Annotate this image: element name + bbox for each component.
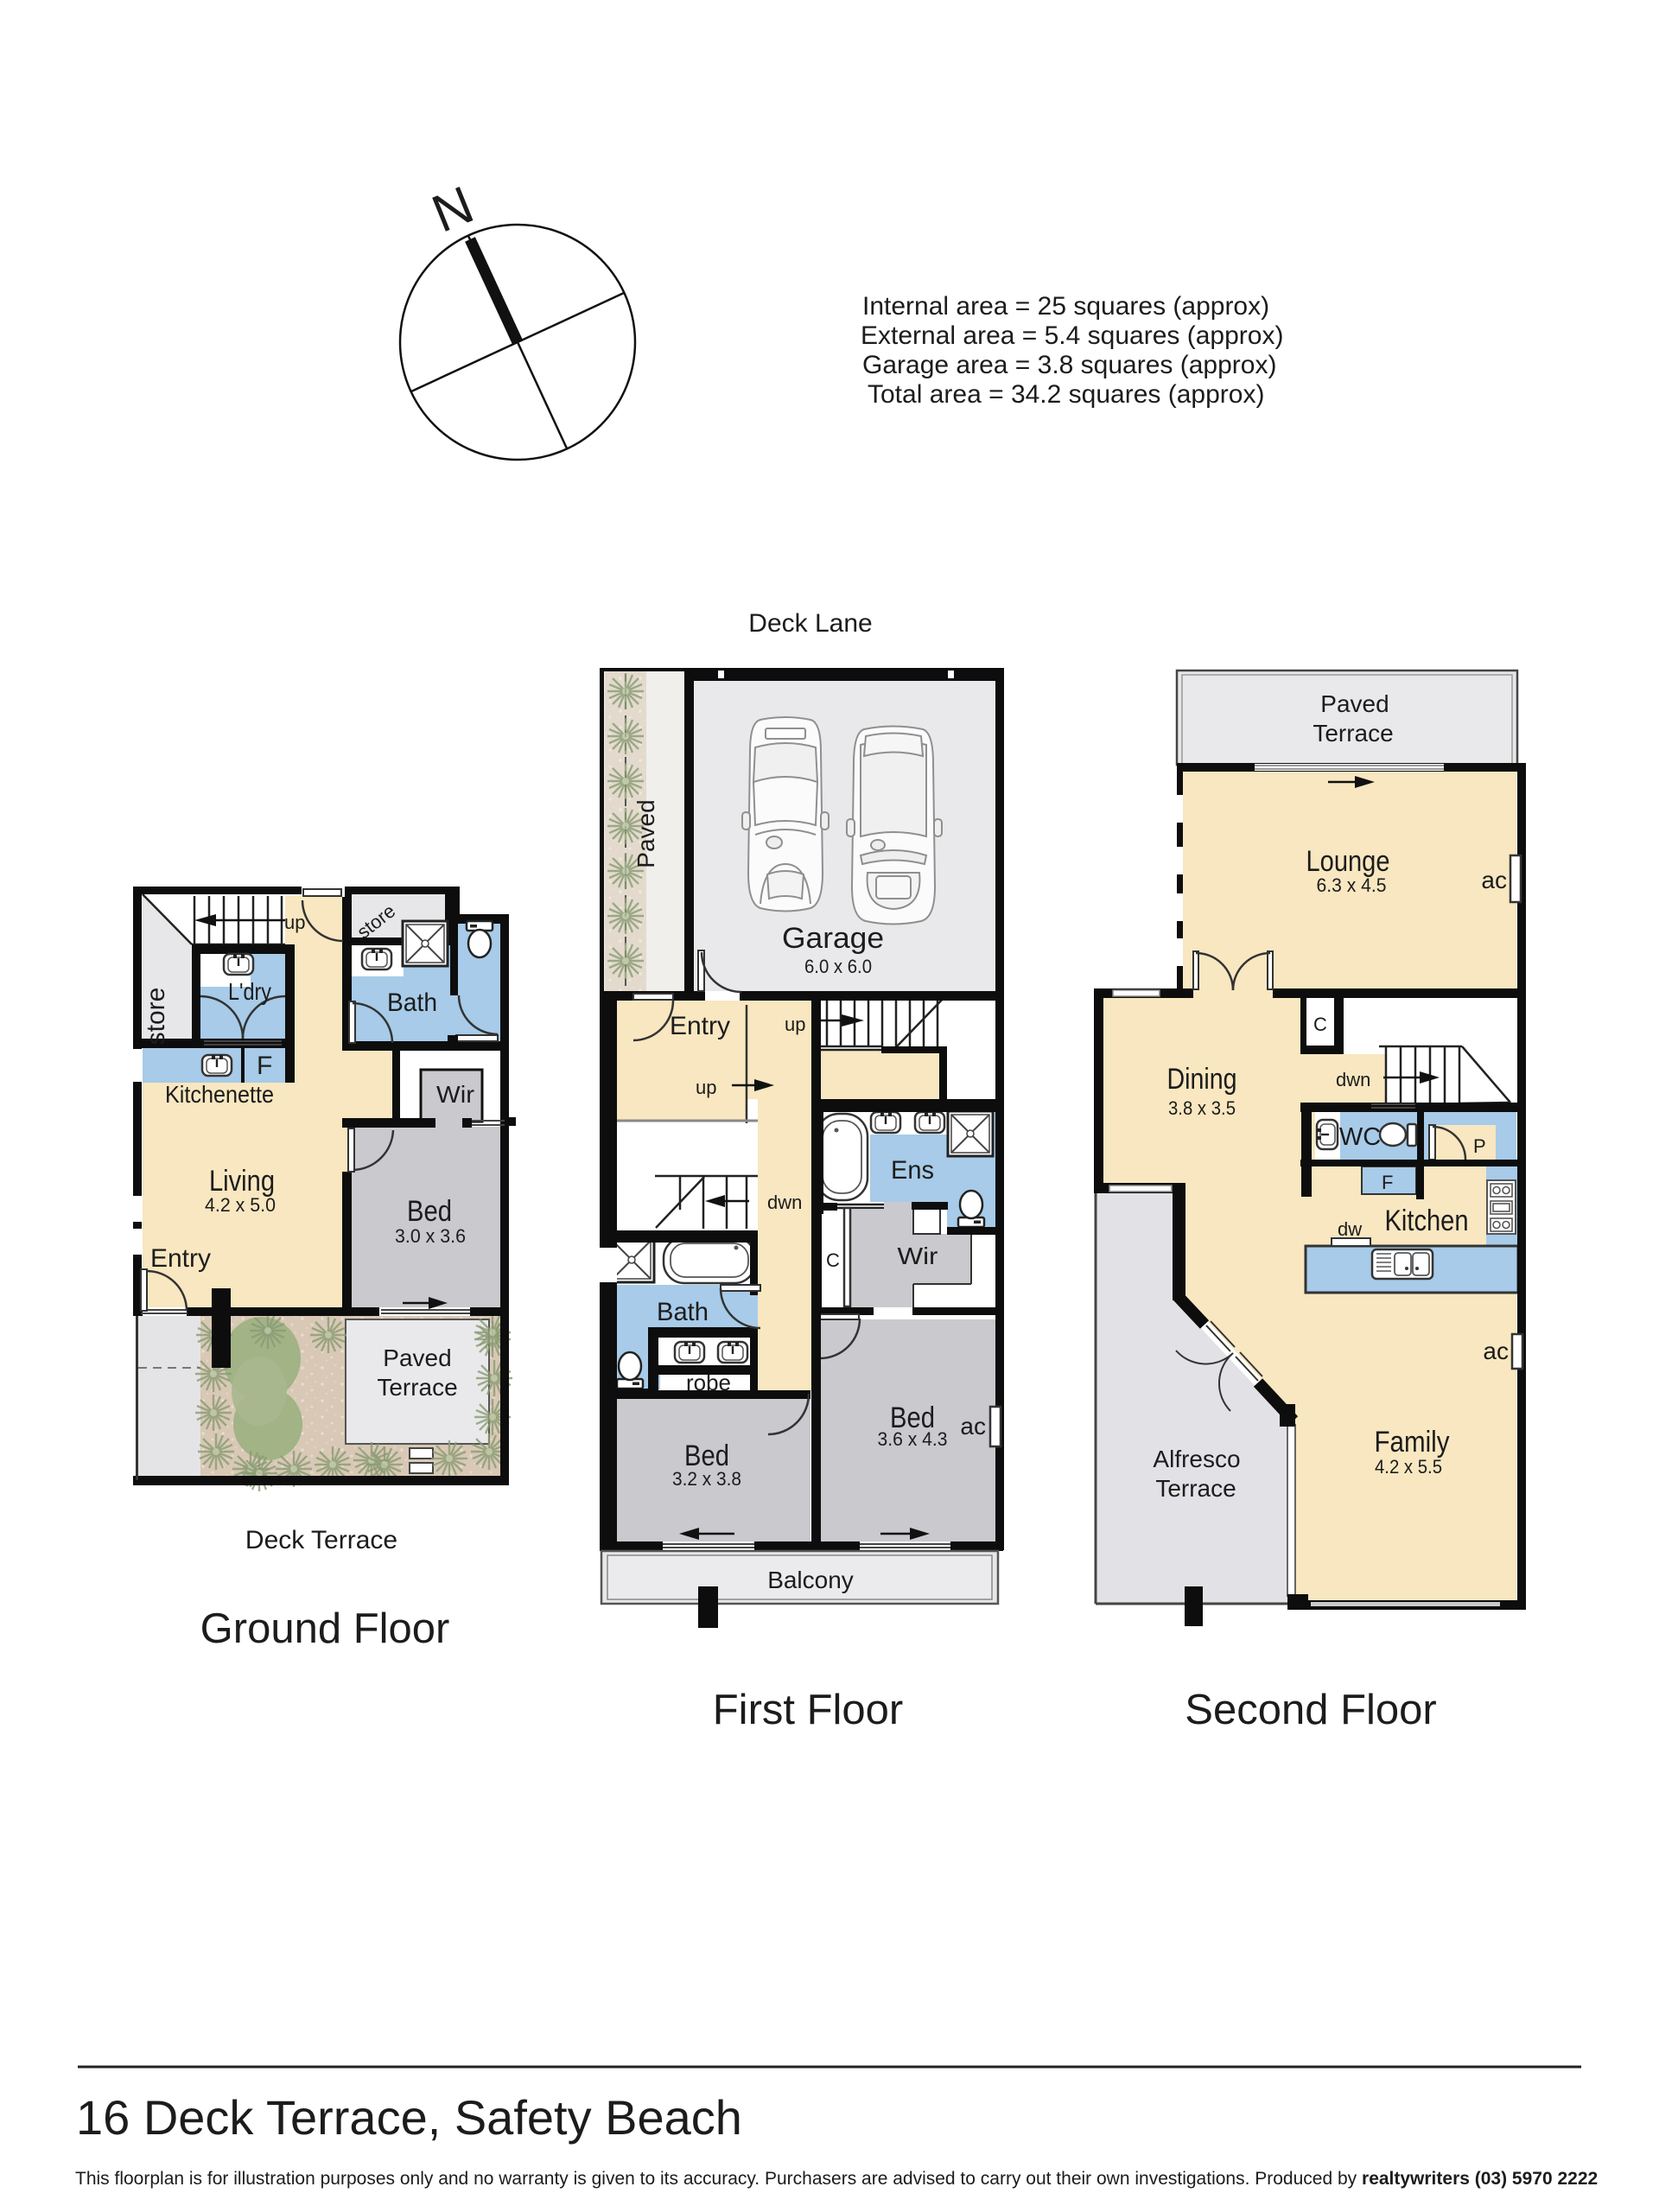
- svg-text:3.8 x 3.5: 3.8 x 3.5: [1168, 1097, 1236, 1119]
- svg-text:dw: dw: [1338, 1218, 1362, 1240]
- svg-text:Living: Living: [209, 1165, 275, 1198]
- svg-text:up: up: [785, 1014, 805, 1035]
- svg-text:External area = 5.4 squares (a: External area = 5.4 squares (approx): [861, 321, 1283, 350]
- svg-text:ac: ac: [960, 1413, 986, 1440]
- svg-text:Bath: Bath: [657, 1298, 709, 1326]
- svg-text:Deck Terrace: Deck Terrace: [245, 1526, 397, 1554]
- svg-text:First Floor: First Floor: [713, 1687, 904, 1733]
- svg-text:Ens: Ens: [891, 1156, 934, 1185]
- svg-text:Second Floor: Second Floor: [1185, 1687, 1436, 1733]
- svg-text:3.2 x 3.8: 3.2 x 3.8: [672, 1468, 741, 1490]
- svg-text:F: F: [1382, 1172, 1393, 1193]
- svg-text:up: up: [696, 1077, 716, 1098]
- svg-text:Garage: Garage: [782, 922, 884, 955]
- svg-text:ac: ac: [1481, 867, 1507, 893]
- svg-text:Bath: Bath: [387, 988, 437, 1017]
- svg-text:C: C: [826, 1249, 840, 1271]
- svg-text:Alfresco: Alfresco: [1153, 1446, 1240, 1472]
- svg-text:Ground Floor: Ground Floor: [200, 1605, 450, 1652]
- svg-text:Kitchen: Kitchen: [1385, 1205, 1469, 1237]
- svg-text:ac: ac: [1483, 1338, 1509, 1364]
- svg-text:dwn: dwn: [1336, 1069, 1370, 1090]
- svg-text:Lounge: Lounge: [1306, 845, 1390, 878]
- svg-text:L'dry: L'dry: [228, 978, 271, 1005]
- svg-text:store: store: [142, 988, 170, 1046]
- svg-text:Paved: Paved: [383, 1344, 451, 1371]
- svg-text:Terrace: Terrace: [1313, 720, 1393, 747]
- svg-text:up: up: [284, 912, 305, 933]
- svg-text:Balcony: Balcony: [767, 1567, 854, 1593]
- svg-text:Kitchenette: Kitchenette: [165, 1081, 274, 1108]
- svg-text:Total area = 34.2 squares (app: Total area = 34.2 squares (approx): [868, 380, 1264, 409]
- svg-text:Wir: Wir: [898, 1243, 938, 1269]
- svg-text:Wir: Wir: [436, 1081, 474, 1108]
- svg-text:Bed: Bed: [407, 1195, 452, 1228]
- svg-text:Family: Family: [1375, 1426, 1450, 1459]
- svg-text:6.3 x 4.5: 6.3 x 4.5: [1317, 874, 1387, 896]
- svg-text:dwn: dwn: [767, 1192, 802, 1213]
- svg-text:4.2 x 5.5: 4.2 x 5.5: [1375, 1456, 1442, 1478]
- svg-text:P: P: [1473, 1135, 1486, 1157]
- svg-text:WC: WC: [1339, 1123, 1381, 1151]
- svg-text:Paved: Paved: [632, 799, 659, 868]
- svg-text:Terrace: Terrace: [377, 1374, 457, 1401]
- svg-text:Dining: Dining: [1167, 1063, 1237, 1096]
- svg-text:Terrace: Terrace: [1155, 1475, 1236, 1502]
- svg-text:3.0 x 3.6: 3.0 x 3.6: [395, 1225, 466, 1247]
- svg-text:Internal area = 25 squares (ap: Internal area = 25 squares (approx): [862, 292, 1269, 321]
- svg-text:6.0 x 6.0: 6.0 x 6.0: [804, 956, 872, 977]
- svg-text:4.2 x 5.0: 4.2 x 5.0: [205, 1194, 276, 1216]
- svg-text:16 Deck Terrace, Safety Beach: 16 Deck Terrace, Safety Beach: [76, 2090, 742, 2145]
- svg-text:This floorplan is for illustra: This floorplan is for illustration purpo…: [75, 2169, 1598, 2189]
- svg-text:Paved: Paved: [1320, 690, 1389, 717]
- svg-text:3.6 x 4.3: 3.6 x 4.3: [878, 1428, 948, 1450]
- svg-text:Deck Lane: Deck Lane: [748, 609, 872, 638]
- svg-text:C: C: [1313, 1014, 1327, 1035]
- svg-text:F: F: [257, 1052, 272, 1080]
- svg-text:Garage area = 3.8 squares (app: Garage area = 3.8 squares (approx): [862, 351, 1276, 379]
- svg-text:Entry: Entry: [670, 1012, 730, 1040]
- svg-text:Entry: Entry: [150, 1244, 211, 1273]
